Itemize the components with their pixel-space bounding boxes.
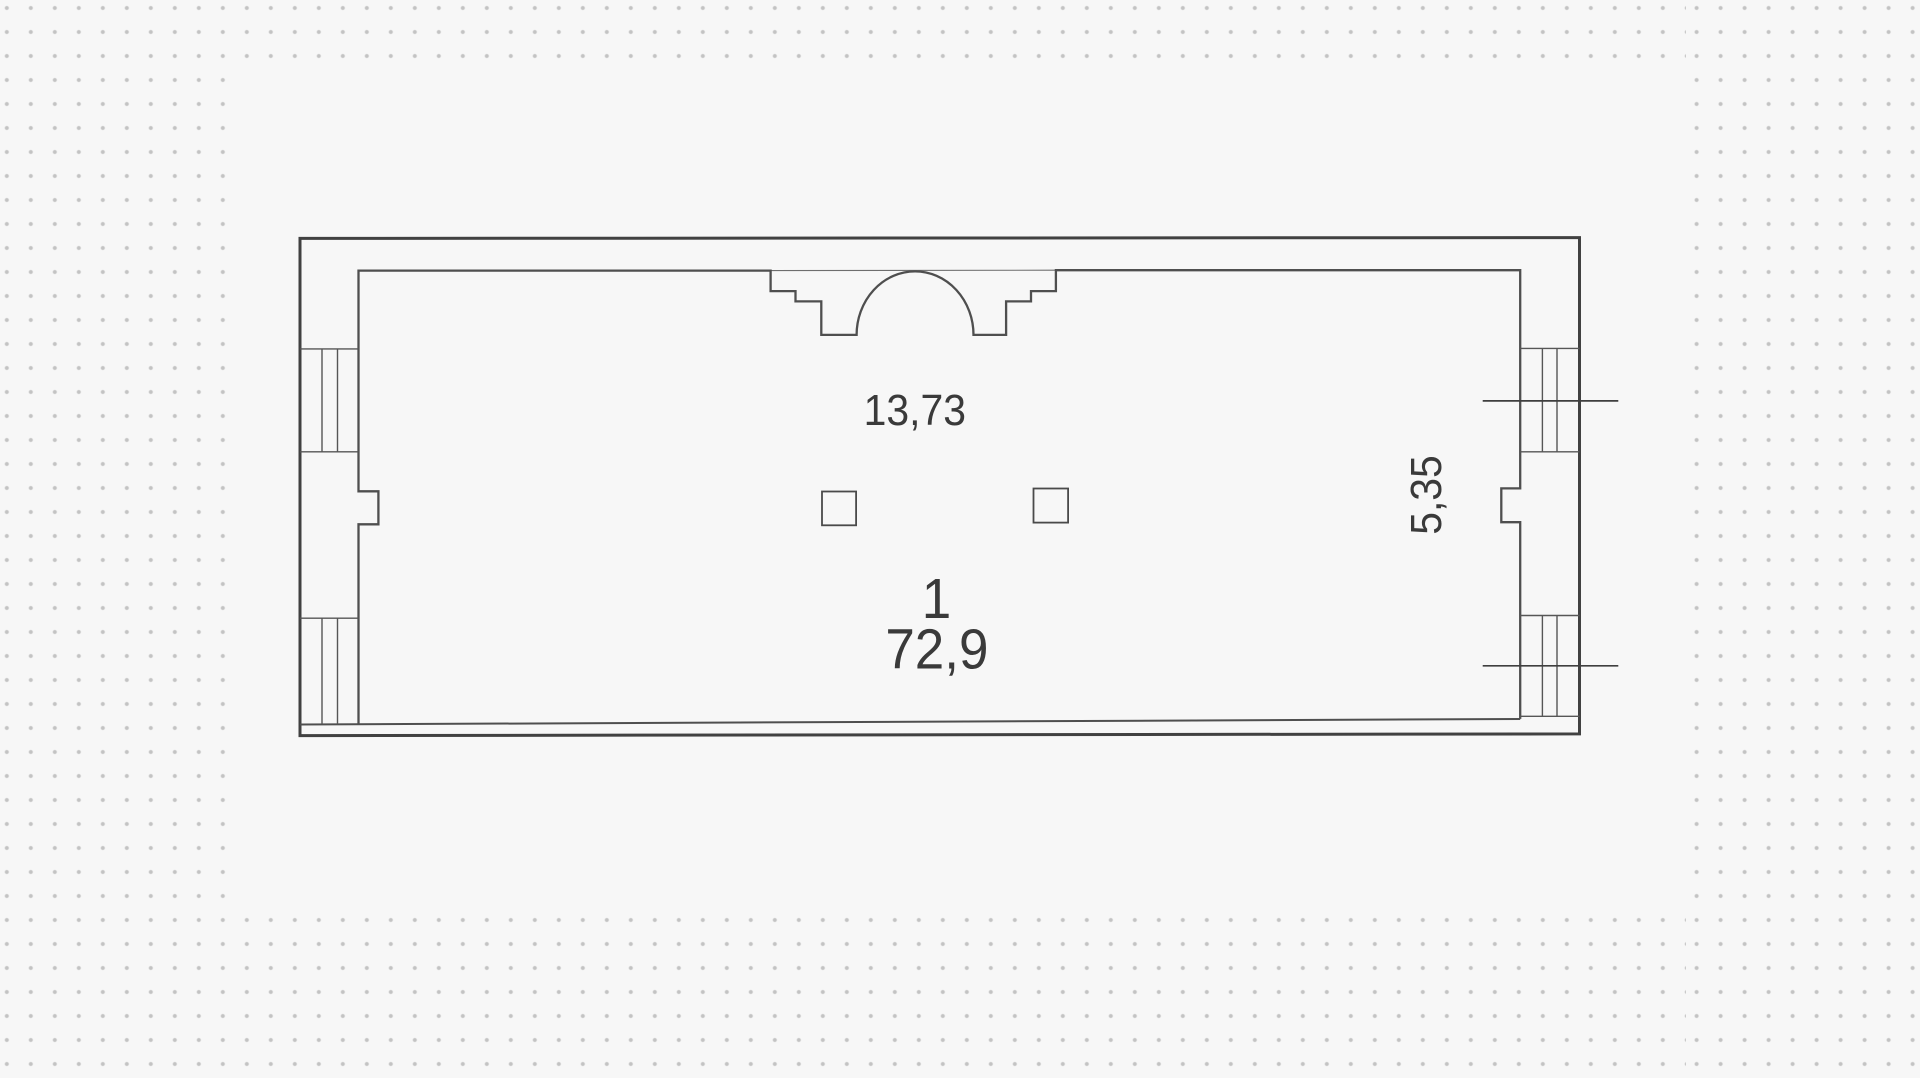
svg-text:72,9: 72,9: [885, 617, 988, 681]
svg-text:5,35: 5,35: [1403, 455, 1452, 535]
svg-text:13,73: 13,73: [864, 387, 966, 436]
